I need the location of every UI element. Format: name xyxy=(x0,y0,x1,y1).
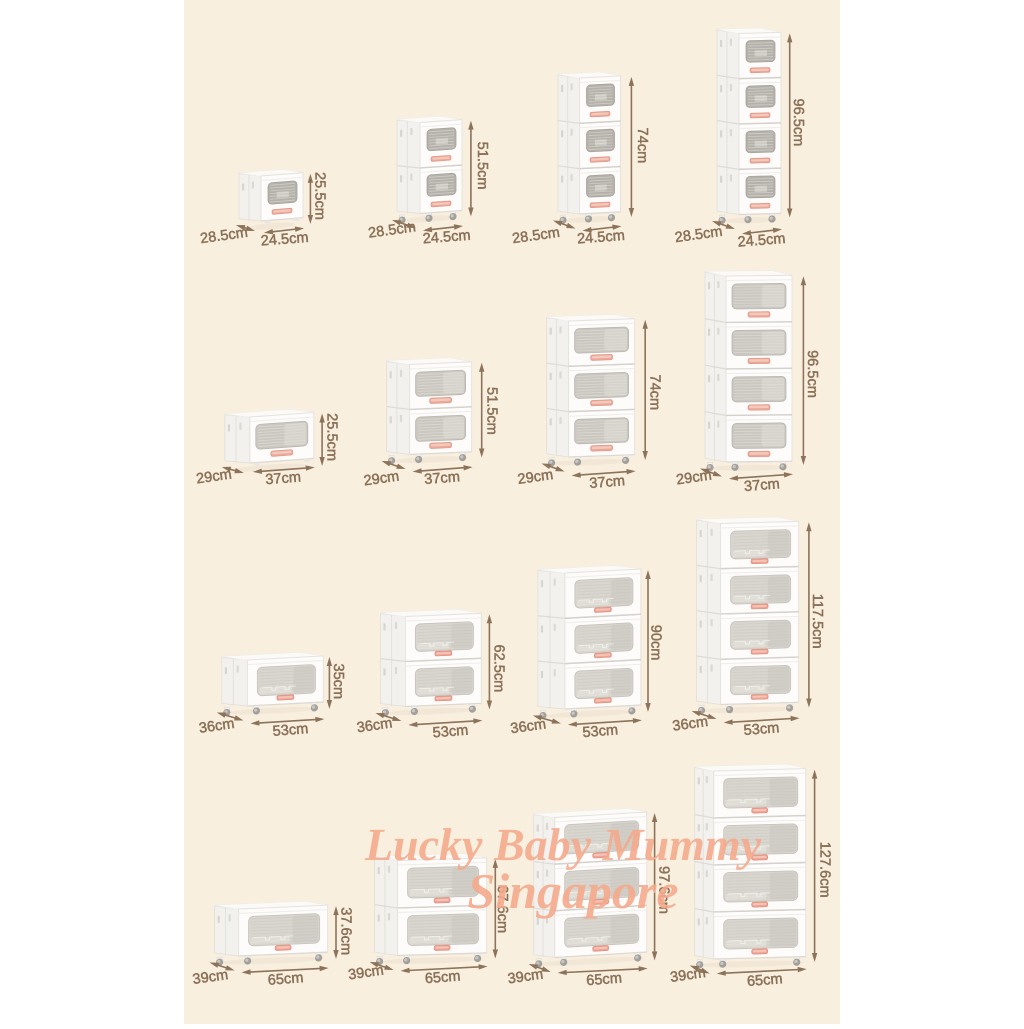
svg-text:37cm: 37cm xyxy=(424,469,461,488)
svg-text:74cm: 74cm xyxy=(646,374,662,410)
svg-text:Singapore: Singapore xyxy=(467,863,678,919)
svg-text:53cm: 53cm xyxy=(272,721,309,740)
svg-text:65cm: 65cm xyxy=(746,971,783,990)
svg-text:37cm: 37cm xyxy=(589,473,626,492)
svg-text:65cm: 65cm xyxy=(424,969,461,988)
svg-text:51.5cm: 51.5cm xyxy=(474,142,490,190)
svg-text:96.5cm: 96.5cm xyxy=(804,350,820,398)
svg-text:53cm: 53cm xyxy=(432,723,469,742)
svg-text:127.6cm: 127.6cm xyxy=(817,842,833,898)
svg-text:25.5cm: 25.5cm xyxy=(312,172,328,220)
svg-text:51.5cm: 51.5cm xyxy=(483,387,499,435)
svg-text:65cm: 65cm xyxy=(586,971,623,990)
svg-text:65cm: 65cm xyxy=(267,970,304,989)
svg-text:53cm: 53cm xyxy=(743,720,780,739)
svg-text:35cm: 35cm xyxy=(330,663,346,699)
svg-text:25.5cm: 25.5cm xyxy=(324,413,340,461)
svg-text:37cm: 37cm xyxy=(265,470,302,489)
svg-text:117.5cm: 117.5cm xyxy=(809,594,825,649)
svg-text:62.5cm: 62.5cm xyxy=(491,644,507,692)
svg-text:90cm: 90cm xyxy=(647,625,663,661)
svg-text:37cm: 37cm xyxy=(743,476,780,495)
svg-text:53cm: 53cm xyxy=(582,722,619,741)
svg-text:96.5cm: 96.5cm xyxy=(790,98,806,146)
svg-text:37.6cm: 37.6cm xyxy=(338,907,354,955)
svg-text:74cm: 74cm xyxy=(634,128,650,164)
